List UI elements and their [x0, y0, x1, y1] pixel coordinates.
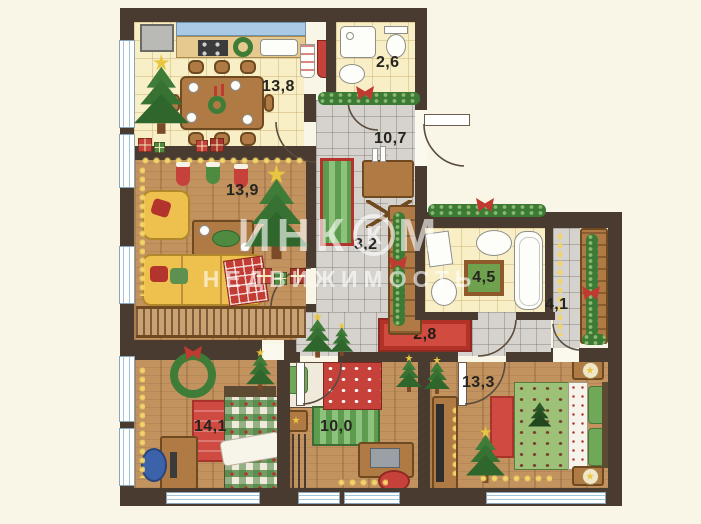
kitchen-wreath-icon — [233, 37, 253, 57]
room-label-bedroom-middle: 10,0 — [320, 418, 353, 436]
fairy-lights-dressing — [555, 232, 562, 336]
table-wreath-centerpiece — [208, 96, 226, 114]
room-label-bathroom-main: 4,5 — [472, 269, 495, 287]
wall-kitchen-right — [304, 94, 316, 122]
pillow-red — [150, 266, 168, 282]
christmas-tree-corridor-small — [330, 322, 353, 358]
candle — [214, 86, 217, 96]
shower-drain — [346, 32, 354, 40]
christmas-tree-living — [244, 164, 309, 264]
toilet-tank-small — [384, 26, 408, 34]
blanket-tree-motif — [528, 404, 551, 440]
wall-living-right2 — [306, 304, 316, 312]
plate — [199, 225, 210, 236]
window-left-2 — [119, 134, 135, 188]
stocking-red — [176, 162, 190, 186]
window-left-1 — [119, 40, 135, 128]
fairy-lights-living-wall — [137, 166, 145, 296]
pillow-green — [170, 268, 188, 284]
dining-chair — [240, 60, 256, 74]
shower — [340, 26, 376, 58]
dressing-door-opening — [553, 348, 579, 362]
window-left-3 — [119, 246, 135, 304]
bath-mat: 4,5 — [464, 260, 504, 296]
room-label-dressing-hall: 4,1 — [545, 296, 568, 314]
garland-corridor-end — [582, 334, 606, 345]
gift-box — [290, 268, 306, 284]
gift-box — [210, 138, 224, 152]
gift-box — [196, 140, 208, 152]
room-label-entry-hall: 10,7 — [374, 130, 407, 148]
plate — [188, 82, 199, 93]
bathroom-mirror — [425, 230, 453, 267]
window-bottom-4 — [486, 492, 606, 504]
gift-box — [256, 268, 272, 284]
wall-bedrooms-divider-left — [277, 356, 290, 492]
room-label-bedroom-right: 13,3 — [462, 374, 495, 392]
wall-top — [120, 8, 427, 22]
bathtub-inner — [519, 237, 540, 306]
garland-wardrobe-right — [586, 234, 598, 338]
kitchen-towel-white — [300, 44, 315, 78]
fairy-lights-bedroom-middle — [336, 478, 388, 487]
candle — [380, 146, 386, 162]
laptop — [370, 448, 400, 468]
bedroom-middle-door-leaf — [296, 362, 305, 406]
plate — [230, 80, 241, 91]
tv-screen — [436, 404, 444, 482]
fridge — [140, 24, 174, 52]
window-bottom-3 — [344, 492, 400, 504]
fairy-lights-bedroom-right — [478, 474, 552, 483]
computer-monitor — [170, 452, 177, 478]
gift-box — [138, 138, 152, 152]
window-left-5 — [119, 428, 135, 486]
room-label-bedroom-left: 14,1 — [194, 418, 227, 436]
sheet-white-dots — [568, 382, 588, 470]
christmas-tree-bedroom-left — [246, 348, 275, 392]
christmas-tree-bedroom-right-small — [424, 356, 450, 396]
window-left-4 — [119, 356, 135, 422]
fairy-lights-bedroom-left — [137, 366, 145, 478]
room-label-kitchen: 13,8 — [262, 78, 295, 96]
console-table — [362, 160, 414, 198]
hall-runner-rug — [320, 158, 354, 246]
candle — [372, 148, 378, 162]
entrance-door-leaf — [424, 114, 470, 126]
wall-kitchen-bath — [326, 8, 336, 92]
christmas-tree-corridor — [302, 312, 333, 360]
radiator — [292, 434, 308, 488]
fairy-lights-tv — [450, 406, 456, 476]
stove — [198, 40, 228, 56]
wall-right — [608, 212, 622, 494]
room-label-living-room: 13,9 — [226, 182, 259, 200]
floor-plan: 4,5 2,8 — [0, 0, 701, 524]
window-bottom-1 — [166, 492, 260, 504]
washbasin-main — [476, 230, 512, 256]
room-label-inner-corridor: 3,2 — [354, 236, 377, 254]
window-bottom-2 — [298, 492, 340, 504]
gift-box — [274, 272, 287, 285]
kitchen-sink — [260, 39, 298, 56]
wall-bath-main-left — [415, 228, 425, 320]
plate — [242, 114, 253, 125]
wall-bath-main-bottom-a — [415, 312, 478, 320]
dining-chair-end — [264, 94, 274, 112]
wall-corridor-bottom-a — [290, 352, 300, 362]
dining-chair — [240, 132, 256, 146]
kitchen-countertop — [176, 22, 306, 36]
wreath-plate — [212, 230, 240, 247]
blanket-red-stars — [323, 362, 382, 410]
toilet-bowl-main — [431, 278, 457, 306]
dining-chair — [188, 60, 204, 74]
christmas-tree-kitchen — [134, 54, 189, 138]
wreath-bedroom-left — [170, 352, 216, 398]
washbasin-small — [339, 64, 365, 84]
candle — [221, 84, 224, 96]
bookshelf — [136, 306, 306, 338]
room-label-bathroom-small: 2,6 — [376, 54, 399, 72]
stocking-green — [206, 162, 220, 184]
gift-box — [154, 142, 165, 153]
christmas-tree-bedroom-middle — [396, 354, 422, 394]
dining-chair — [214, 60, 230, 74]
